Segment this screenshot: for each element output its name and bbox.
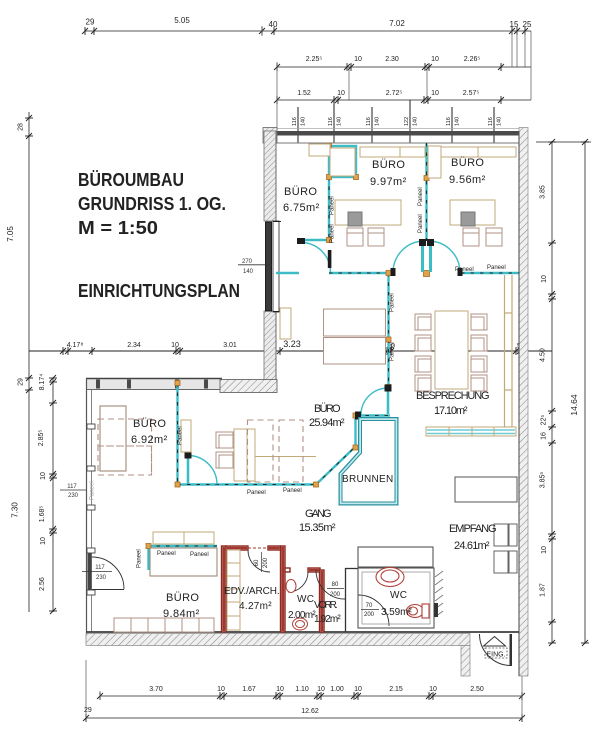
svg-text:EINRICHTUNGSPLAN: EINRICHTUNGSPLAN: [78, 281, 240, 301]
svg-text:10: 10: [541, 546, 548, 554]
svg-text:2.85⁵: 2.85⁵: [38, 430, 45, 447]
svg-text:2.25⁵: 2.25⁵: [306, 56, 323, 63]
svg-text:140: 140: [301, 117, 307, 126]
svg-text:1.87: 1.87: [540, 583, 547, 597]
svg-text:230: 230: [68, 493, 79, 499]
svg-text:17.10m²: 17.10m²: [434, 405, 468, 417]
svg-text:140: 140: [375, 117, 381, 126]
svg-text:2.50: 2.50: [470, 686, 484, 693]
svg-text:2.15: 2.15: [389, 686, 403, 693]
svg-text:Paneel: Paneel: [390, 293, 396, 312]
svg-text:117: 117: [67, 484, 77, 490]
svg-text:1.67: 1.67: [242, 686, 256, 693]
svg-text:8.17⁴: 8.17⁴: [39, 374, 46, 391]
svg-text:Paneel: Paneel: [157, 551, 176, 557]
svg-text:10: 10: [431, 90, 439, 97]
svg-text:22⁵: 22⁵: [541, 415, 548, 426]
svg-text:Paneel: Paneel: [137, 549, 143, 568]
svg-text:140: 140: [243, 269, 254, 275]
svg-text:Paneel: Paneel: [330, 196, 336, 215]
svg-text:Paneel: Paneel: [418, 214, 424, 233]
svg-text:10: 10: [276, 686, 284, 693]
svg-text:9.97m²: 9.97m²: [370, 176, 407, 188]
svg-text:24.61m²: 24.61m²: [454, 540, 490, 552]
svg-text:15.35m²: 15.35m²: [299, 522, 336, 534]
svg-text:3.23: 3.23: [283, 339, 301, 349]
svg-text:1.52: 1.52: [297, 90, 311, 97]
svg-text:2.34: 2.34: [127, 342, 141, 349]
svg-text:Paneel: Paneel: [247, 490, 266, 496]
svg-text:Paneel: Paneel: [487, 265, 506, 271]
svg-text:10: 10: [354, 686, 362, 693]
svg-text:GANG: GANG: [305, 508, 332, 520]
svg-text:BESPRECHUNG: BESPRECHUNG: [416, 390, 490, 402]
svg-text:BÜRO: BÜRO: [372, 159, 405, 171]
svg-text:1.68⁵: 1.68⁵: [39, 506, 46, 523]
svg-text:7.30: 7.30: [11, 502, 20, 518]
svg-text:Paneel: Paneel: [178, 426, 184, 445]
svg-text:2.00m²: 2.00m²: [288, 610, 316, 621]
svg-text:60: 60: [254, 559, 260, 566]
svg-text:140: 140: [455, 117, 461, 126]
svg-text:25.94m²: 25.94m²: [309, 417, 345, 429]
svg-text:4.27m²: 4.27m²: [239, 601, 272, 612]
svg-text:2.30: 2.30: [385, 56, 399, 63]
svg-text:80: 80: [332, 582, 339, 588]
svg-text:6.75m²: 6.75m²: [283, 202, 320, 214]
svg-text:BÜRO: BÜRO: [166, 592, 199, 604]
svg-text:3.59m²: 3.59m²: [381, 607, 412, 618]
svg-text:Paneel: Paneel: [455, 267, 474, 273]
svg-text:Paneel: Paneel: [330, 224, 336, 243]
svg-text:29: 29: [86, 18, 95, 27]
svg-text:116: 116: [366, 117, 372, 126]
svg-text:40: 40: [269, 20, 278, 29]
svg-text:116: 116: [446, 117, 452, 126]
svg-text:29: 29: [18, 378, 25, 386]
svg-text:Paneel: Paneel: [90, 481, 96, 500]
svg-text:BÜRO: BÜRO: [314, 403, 341, 415]
svg-text:4.17⁸: 4.17⁸: [67, 342, 84, 349]
svg-text:10: 10: [171, 342, 179, 349]
svg-text:2.57⁵: 2.57⁵: [463, 90, 480, 97]
svg-text:12.62: 12.62: [301, 708, 319, 715]
svg-text:116: 116: [292, 117, 298, 126]
svg-text:10: 10: [429, 686, 437, 693]
svg-text:Paneel: Paneel: [390, 342, 396, 361]
svg-text:BÜRO: BÜRO: [451, 157, 484, 169]
svg-text:1.92m²: 1.92m²: [314, 614, 341, 625]
svg-text:BÜROUMBAU: BÜROUMBAU: [78, 169, 184, 190]
svg-text:28: 28: [18, 123, 25, 131]
svg-text:1.10: 1.10: [295, 686, 309, 693]
svg-text:EMPFANG: EMPFANG: [449, 523, 497, 535]
svg-text:15: 15: [510, 20, 519, 29]
svg-text:Paneel: Paneel: [418, 187, 424, 206]
svg-text:2.26⁵: 2.26⁵: [464, 56, 481, 63]
svg-text:3.85: 3.85: [540, 185, 547, 199]
svg-text:116: 116: [488, 117, 494, 126]
svg-text:EING.: EING.: [486, 652, 505, 659]
svg-text:140: 140: [413, 117, 419, 126]
svg-text:10: 10: [317, 686, 325, 693]
svg-text:140: 140: [337, 117, 343, 126]
svg-text:3.01: 3.01: [223, 342, 237, 349]
svg-text:230: 230: [96, 575, 107, 581]
svg-text:122: 122: [404, 117, 410, 126]
svg-text:7.05: 7.05: [6, 226, 15, 242]
svg-text:70: 70: [366, 603, 373, 609]
svg-text:7.02: 7.02: [389, 19, 405, 28]
svg-text:EDV./ARCH.: EDV./ARCH.: [224, 586, 280, 597]
svg-text:1.00: 1.00: [330, 686, 344, 693]
svg-text:BRUNNEN: BRUNNEN: [342, 474, 394, 485]
svg-text:M = 1:50: M = 1:50: [78, 217, 158, 238]
svg-text:29: 29: [84, 707, 92, 714]
svg-text:BÜRO: BÜRO: [133, 418, 166, 430]
svg-text:3.85⁵: 3.85⁵: [540, 472, 547, 489]
svg-text:140: 140: [497, 117, 503, 126]
svg-text:270: 270: [242, 259, 253, 265]
svg-text:3.70: 3.70: [149, 686, 163, 693]
svg-text:200: 200: [364, 612, 375, 618]
svg-text:10: 10: [40, 472, 47, 480]
svg-text:200: 200: [263, 557, 269, 568]
svg-text:117: 117: [95, 565, 105, 571]
svg-text:Paneel: Paneel: [283, 488, 302, 494]
svg-text:116: 116: [328, 117, 334, 126]
svg-text:2.72⁵: 2.72⁵: [386, 90, 403, 97]
svg-text:Paneel: Paneel: [190, 552, 209, 558]
svg-text:2.56: 2.56: [39, 577, 46, 591]
svg-text:10: 10: [40, 537, 47, 545]
svg-text:200: 200: [330, 592, 341, 598]
svg-text:WC: WC: [390, 590, 407, 601]
svg-text:6.92m²: 6.92m²: [131, 434, 168, 446]
svg-text:25: 25: [523, 20, 532, 29]
svg-text:10: 10: [217, 686, 225, 693]
svg-text:9.84m²: 9.84m²: [163, 608, 200, 620]
svg-text:10: 10: [541, 275, 548, 283]
svg-text:BÜRO: BÜRO: [284, 186, 317, 198]
svg-text:9.56m²: 9.56m²: [449, 174, 486, 186]
svg-text:GRUNDRISS 1. OG.: GRUNDRISS 1. OG.: [78, 193, 226, 214]
svg-text:16: 16: [541, 432, 548, 440]
svg-text:10: 10: [354, 56, 362, 63]
svg-text:4.50: 4.50: [540, 348, 547, 362]
svg-text:10: 10: [431, 56, 439, 63]
svg-text:14.64: 14.64: [569, 394, 579, 416]
svg-text:5.05: 5.05: [174, 16, 190, 25]
svg-text:VORR.: VORR.: [314, 600, 338, 611]
svg-text:10: 10: [337, 90, 345, 97]
svg-text:WC: WC: [297, 594, 314, 605]
